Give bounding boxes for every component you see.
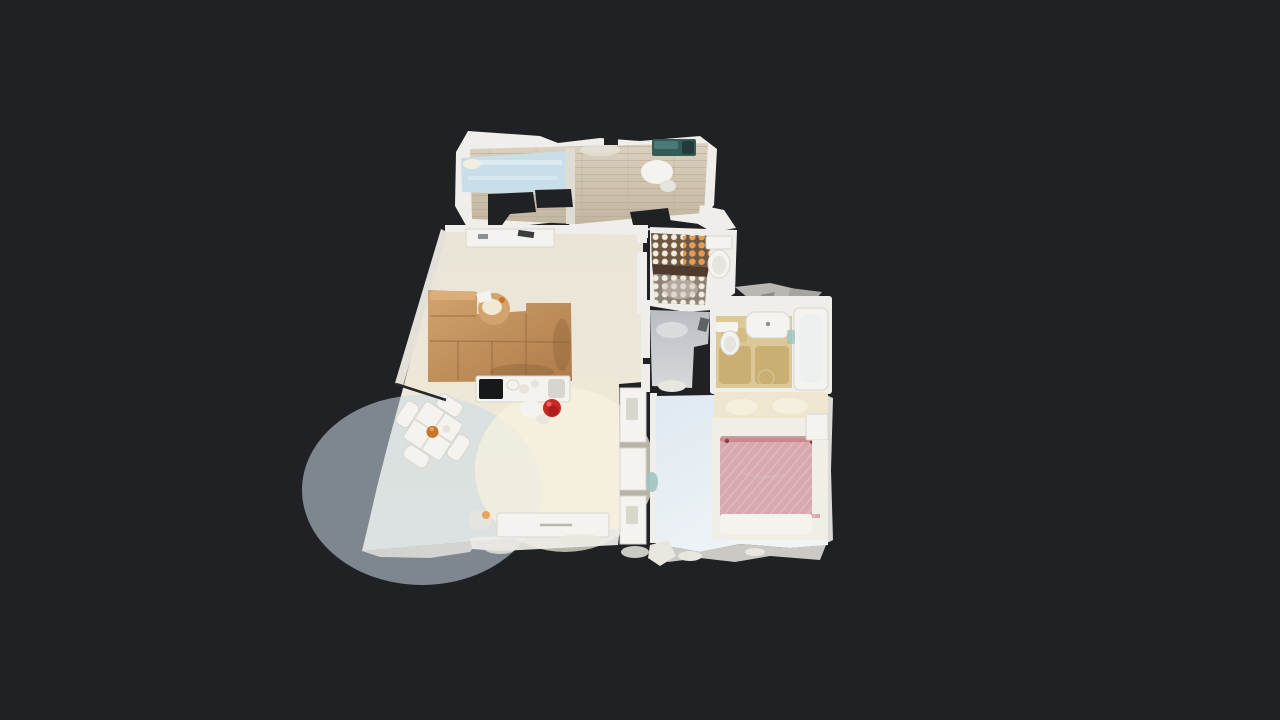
cooktop <box>479 379 503 399</box>
bed-foot-sheet <box>720 514 812 534</box>
bedroom-left-wall <box>650 393 657 543</box>
hall-left-wall <box>641 300 650 358</box>
shelf-item <box>478 234 488 239</box>
closet-detail <box>626 506 638 524</box>
scan-noise <box>484 542 516 554</box>
living-right-wall-nub <box>637 234 647 243</box>
scan-noise <box>745 548 765 556</box>
duvet-accent <box>725 439 729 443</box>
balcony-chair-seat <box>660 180 676 192</box>
toilet-seat <box>724 336 736 352</box>
room-balcony <box>455 131 736 233</box>
sofa-armrest-highlight <box>430 291 476 300</box>
white-chair <box>520 400 540 418</box>
hall-left-wall <box>641 364 650 392</box>
scan-noise <box>558 534 602 546</box>
closet-detail <box>626 398 638 420</box>
toilet-seat <box>712 256 726 275</box>
hall-closets <box>620 388 649 558</box>
glass-panel <box>787 330 795 344</box>
scan-noise <box>580 144 620 156</box>
small-orange-item <box>499 297 505 303</box>
scan-noise <box>678 551 702 561</box>
pillow <box>726 399 758 415</box>
teal-bench-top <box>654 141 678 149</box>
red-stool-shade <box>548 406 559 417</box>
bathroom1-tile-dots-warm <box>683 236 709 266</box>
bed-side-rail <box>812 440 828 514</box>
daybed <box>461 151 568 195</box>
toilet-tank <box>706 236 732 249</box>
small-orange-item <box>482 511 490 519</box>
sofa-shading <box>553 319 571 371</box>
bed-duvet-stitching <box>720 438 820 518</box>
shower-shine <box>662 279 698 299</box>
dish <box>519 384 529 394</box>
room-bathroom-beige <box>710 283 832 394</box>
counter-sink <box>548 379 565 398</box>
pillow <box>772 398 808 414</box>
room-bedroom <box>646 392 833 566</box>
daybed-highlight <box>468 176 558 180</box>
scan-hole <box>535 189 573 208</box>
wall-fragment <box>646 472 658 492</box>
bathtub-inner <box>799 315 823 383</box>
scan-noise <box>621 546 649 558</box>
bath-mat <box>755 346 789 384</box>
daybed-pillow <box>463 159 481 169</box>
closet <box>620 448 646 490</box>
viewer-canvas[interactable] <box>0 0 1280 720</box>
red-stool-highlight <box>547 402 552 407</box>
duvet-rumple <box>720 436 820 442</box>
dish <box>531 380 539 388</box>
faucet <box>766 322 770 326</box>
balcony-divider-wall <box>566 148 575 224</box>
door-threshold <box>658 380 686 392</box>
nightstand <box>806 414 828 440</box>
toilet-tank <box>716 322 738 332</box>
kitchen-counter <box>476 376 570 402</box>
scan-hole <box>604 137 618 145</box>
hall-floor-shine <box>656 322 688 338</box>
sofa-seam <box>430 341 570 342</box>
teal-bench-shadow <box>682 141 694 154</box>
